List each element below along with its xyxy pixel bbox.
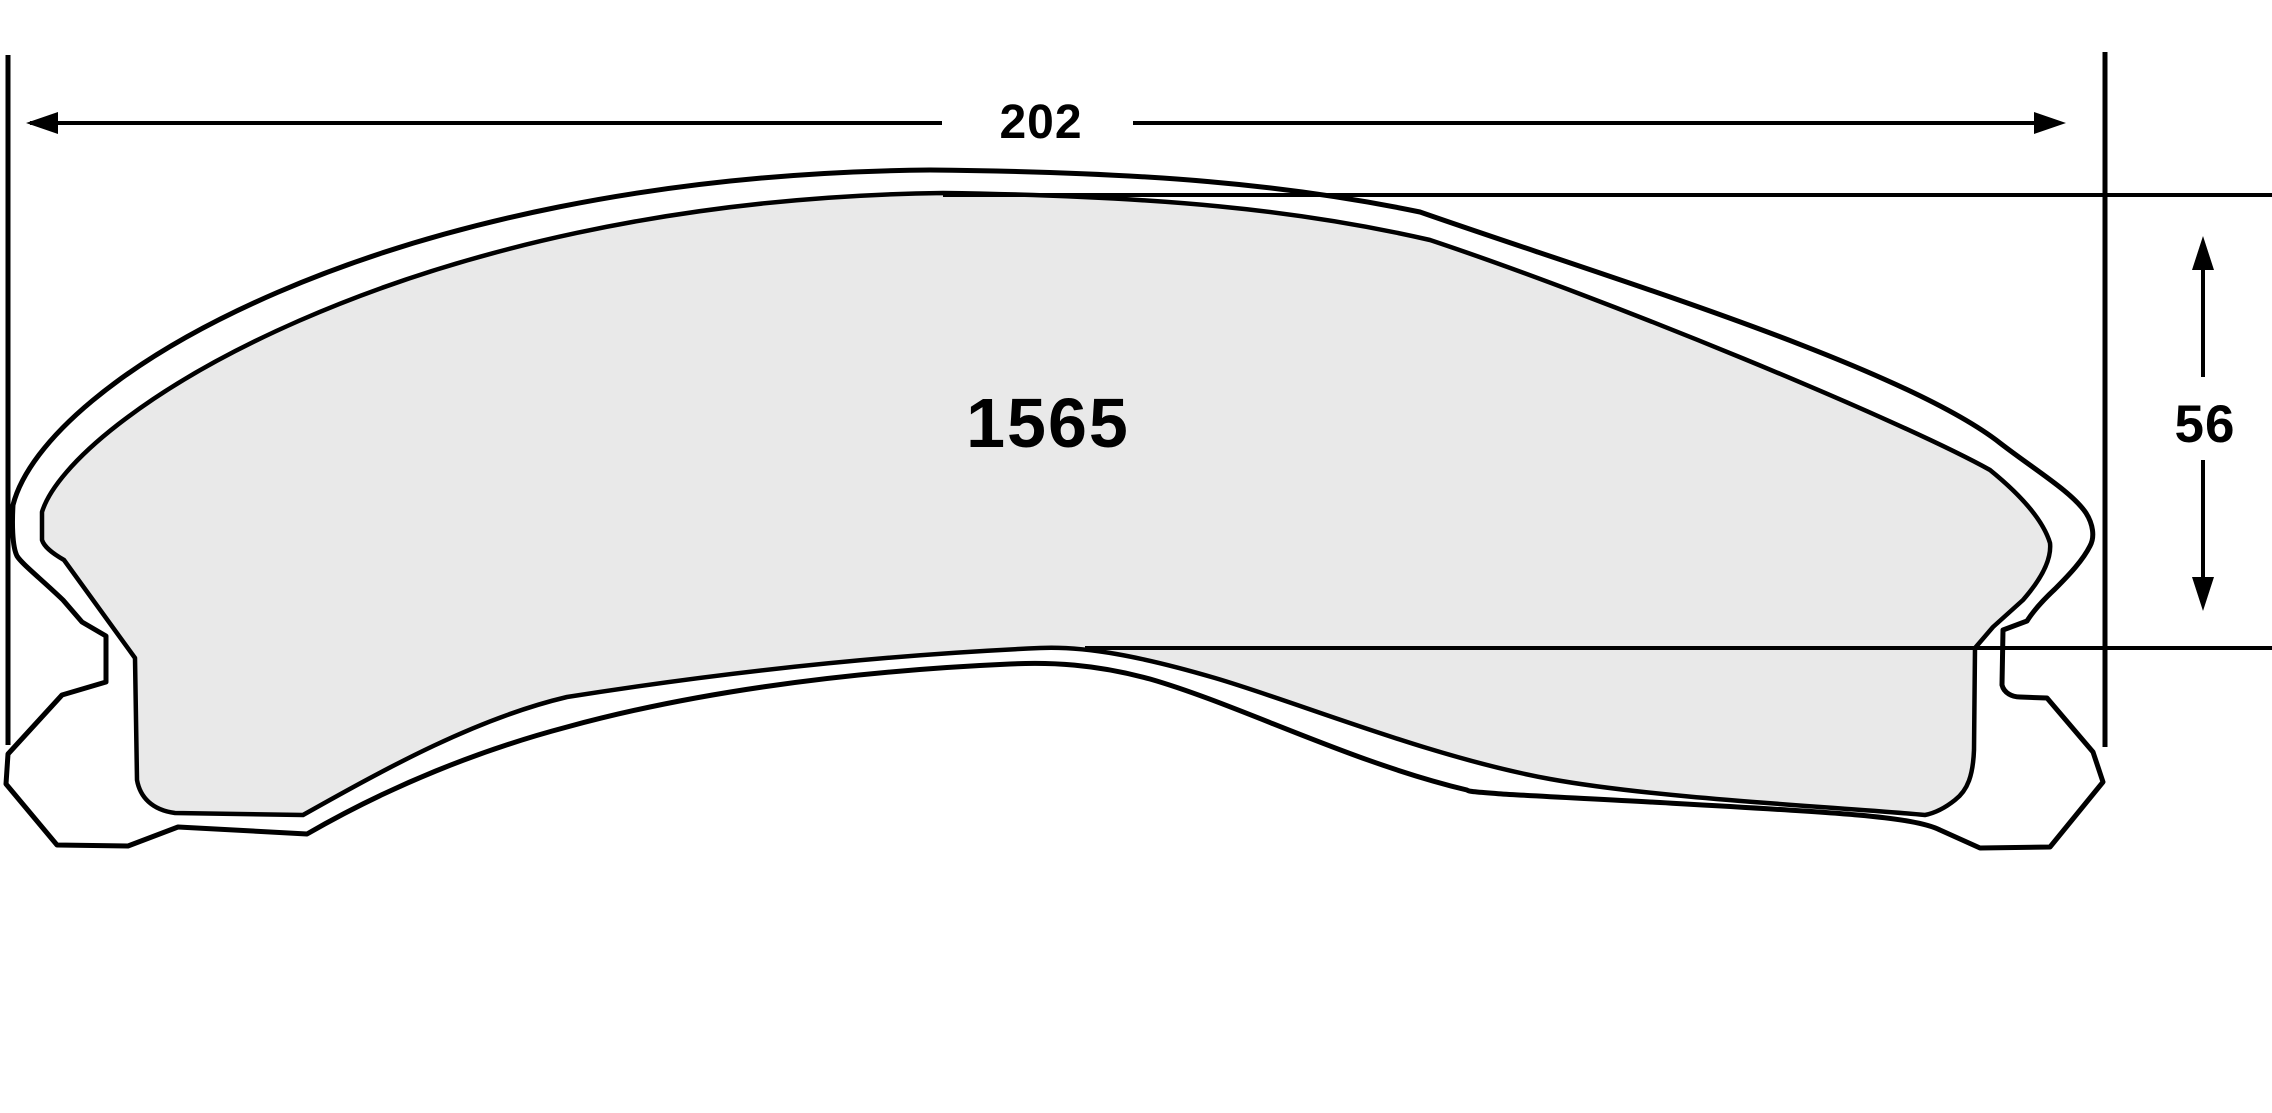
width-dimension-label: 202	[999, 96, 1082, 149]
arrow-up-icon	[2192, 236, 2214, 270]
brake-pad-diagram: 202 56 1565	[0, 0, 2272, 1113]
arrow-left-icon	[26, 112, 58, 134]
part-number-label: 1565	[966, 384, 1130, 462]
height-dimension-label: 56	[2175, 395, 2236, 454]
arrow-right-icon	[2034, 112, 2066, 134]
arrow-down-icon	[2192, 577, 2214, 611]
brake-pad-drawing-canvas: 202 56 1565	[0, 0, 2272, 1113]
